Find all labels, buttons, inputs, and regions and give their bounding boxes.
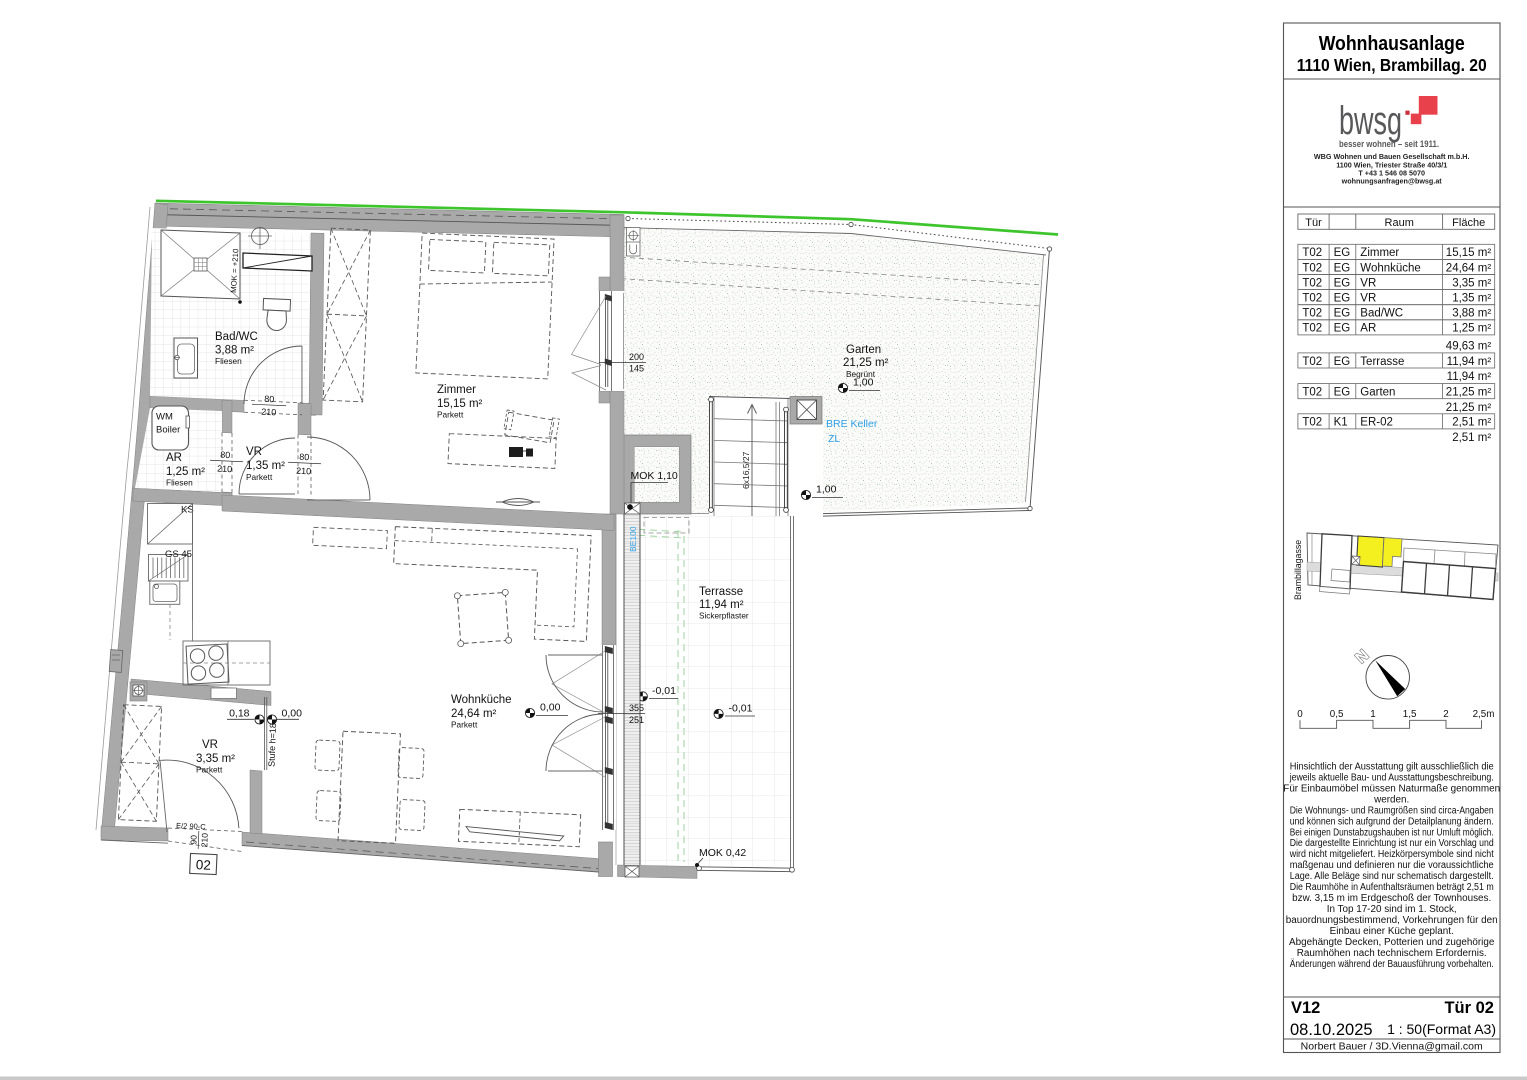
svg-text:Wohnküche: Wohnküche xyxy=(1360,262,1421,274)
svg-text:jeweils aktuelle Bau- und Auss: jeweils aktuelle Bau- und Ausstattungsbe… xyxy=(1289,773,1494,784)
svg-text:VR: VR xyxy=(1360,293,1376,305)
svg-text:21,25 m²: 21,25 m² xyxy=(1446,402,1492,414)
svg-text:Terrasse: Terrasse xyxy=(699,586,743,598)
svg-text:3,88 m²: 3,88 m² xyxy=(215,345,254,357)
svg-text:K1: K1 xyxy=(1334,417,1348,429)
svg-text:EG: EG xyxy=(1334,308,1351,320)
svg-text:3,35 m²: 3,35 m² xyxy=(1452,277,1491,289)
svg-text:wird nicht mitgeliefert. Heizk: wird nicht mitgeliefert. Heizkörpersymbo… xyxy=(1289,849,1494,860)
svg-text:15,15 m²: 15,15 m² xyxy=(1446,247,1492,259)
svg-text:11,94 m²: 11,94 m² xyxy=(1447,356,1492,368)
svg-text:T02: T02 xyxy=(1302,262,1322,274)
svg-text:E/2 90-C: E/2 90-C xyxy=(176,821,207,831)
svg-text:1,35 m²: 1,35 m² xyxy=(1452,293,1491,305)
svg-text:1,25 m²: 1,25 m² xyxy=(166,466,205,478)
svg-text:Garten: Garten xyxy=(1360,387,1395,399)
svg-text:Stufe h=18: Stufe h=18 xyxy=(267,723,279,767)
svg-text:MOK 1,10: MOK 1,10 xyxy=(631,470,678,482)
svg-text:Zimmer: Zimmer xyxy=(1360,247,1399,259)
svg-text:EG: EG xyxy=(1334,356,1351,368)
svg-text:11,94 m²: 11,94 m² xyxy=(1447,371,1492,383)
svg-text:21,25 m²: 21,25 m² xyxy=(1446,387,1492,399)
svg-text:Boiler: Boiler xyxy=(156,425,180,436)
svg-text:ER-02: ER-02 xyxy=(1360,417,1393,429)
svg-text:2: 2 xyxy=(1443,709,1448,720)
svg-text:-0,01: -0,01 xyxy=(652,685,676,697)
svg-text:BE100: BE100 xyxy=(628,526,638,552)
svg-text:0,00: 0,00 xyxy=(282,708,303,720)
svg-text:VR: VR xyxy=(246,446,262,458)
svg-text:200: 200 xyxy=(629,352,644,362)
svg-text:Wohnküche: Wohnküche xyxy=(451,694,512,706)
svg-text:EG: EG xyxy=(1334,262,1351,274)
svg-text:Bad/WC: Bad/WC xyxy=(215,331,258,343)
svg-text:T02: T02 xyxy=(1302,293,1322,305)
svg-text:VR: VR xyxy=(202,739,218,751)
svg-text:355: 355 xyxy=(629,703,644,713)
svg-text:Fliesen: Fliesen xyxy=(166,478,193,488)
svg-text:1,35 m²: 1,35 m² xyxy=(246,460,285,472)
svg-text:90: 90 xyxy=(188,835,198,845)
svg-text:24,64 m²: 24,64 m² xyxy=(1446,262,1492,274)
svg-text:Einbau einer Küche geplant.: Einbau einer Küche geplant. xyxy=(1330,926,1454,937)
svg-text:80: 80 xyxy=(264,394,274,404)
svg-text:Tür: Tür xyxy=(1305,217,1322,229)
svg-text:Parkett: Parkett xyxy=(246,472,273,482)
svg-text:Raum: Raum xyxy=(1385,217,1414,229)
svg-text:Bei einigen Dunstabzugshauben: Bei einigen Dunstabzugshauben ist nur Um… xyxy=(1290,827,1494,838)
svg-text:EG: EG xyxy=(1334,277,1351,289)
svg-text:Terrasse: Terrasse xyxy=(1360,356,1404,368)
svg-text:AR: AR xyxy=(1360,323,1376,335)
svg-text:2,51 m²: 2,51 m² xyxy=(1452,417,1491,429)
svg-text:02: 02 xyxy=(195,857,211,873)
svg-text:In Top 17-20 sind im 1. Stock,: In Top 17-20 sind im 1. Stock, xyxy=(1327,904,1457,915)
svg-text:Brambillagasse: Brambillagasse xyxy=(1293,540,1303,600)
svg-text:KS: KS xyxy=(181,505,194,516)
svg-text:Hinsichtlich der Ausstattung g: Hinsichtlich der Ausstattung gilt aussch… xyxy=(1290,762,1494,773)
svg-text:Raumhöhen nach technischem Erf: Raumhöhen nach technischem Erfordernis. xyxy=(1297,948,1487,959)
svg-text:bwsg: bwsg xyxy=(1339,99,1402,143)
svg-text:bauordnungsbestimmend, Vorkehr: bauordnungsbestimmend, Vorkehrungen für … xyxy=(1286,915,1498,926)
svg-text:und können sich aufgrund der D: und können sich aufgrund der Detailplanu… xyxy=(1290,816,1494,827)
svg-text:Sickerpflaster: Sickerpflaster xyxy=(699,612,749,621)
svg-text:Die Wohnungs- und Raumgrößen s: Die Wohnungs- und Raumgrößen sind circa-… xyxy=(1290,805,1494,816)
svg-text:11,94 m²: 11,94 m² xyxy=(699,599,744,611)
svg-text:6x16,5/27: 6x16,5/27 xyxy=(741,451,751,489)
svg-text:EG: EG xyxy=(1334,293,1351,305)
svg-text:T02: T02 xyxy=(1302,417,1322,429)
svg-text:VR: VR xyxy=(1360,277,1376,289)
svg-text:Fliesen: Fliesen xyxy=(215,356,242,366)
svg-text:BRE Keller: BRE Keller xyxy=(826,418,878,430)
svg-text:1 : 50(Format A3): 1 : 50(Format A3) xyxy=(1387,1021,1496,1037)
svg-text:251: 251 xyxy=(629,715,644,725)
svg-text:3,88 m²: 3,88 m² xyxy=(1452,308,1491,320)
svg-text:-0,01: -0,01 xyxy=(729,703,753,715)
svg-text:1,25 m²: 1,25 m² xyxy=(1452,323,1491,335)
svg-text:ZL: ZL xyxy=(828,433,840,445)
svg-text:GS 45: GS 45 xyxy=(165,549,192,560)
svg-text:210: 210 xyxy=(296,466,311,477)
svg-text:0,18: 0,18 xyxy=(229,708,250,720)
svg-text:WM: WM xyxy=(156,412,173,423)
svg-text:Wohnhausanlage: Wohnhausanlage xyxy=(1319,33,1465,55)
svg-text:maßgenau und definieren nur di: maßgenau und definieren nur die voraussi… xyxy=(1290,860,1494,871)
svg-text:21,25 m²: 21,25 m² xyxy=(843,357,889,369)
svg-text:EG: EG xyxy=(1334,387,1351,399)
svg-text:besser wohnen – seit 1911.: besser wohnen – seit 1911. xyxy=(1339,139,1439,150)
svg-text:1,00: 1,00 xyxy=(853,377,874,389)
svg-text:EG: EG xyxy=(1334,247,1351,259)
svg-text:wohnungsanfragen@bwsg.at: wohnungsanfragen@bwsg.at xyxy=(1341,177,1443,186)
svg-text:1,00: 1,00 xyxy=(816,484,837,496)
svg-text:Norbert Bauer / 3D.Vienna@gmai: Norbert Bauer / 3D.Vienna@gmail.com xyxy=(1301,1041,1483,1053)
svg-text:210: 210 xyxy=(199,833,209,848)
svg-text:Änderungen während der Bauausf: Änderungen während der Bauausführung vor… xyxy=(1290,959,1494,970)
svg-text:Die dargestellte Einrichtung i: Die dargestellte Einrichtung ist nur ein… xyxy=(1290,838,1494,849)
svg-text:Parkett: Parkett xyxy=(451,720,478,730)
svg-text:80: 80 xyxy=(299,452,309,462)
svg-text:1110 Wien, Brambillag. 20: 1110 Wien, Brambillag. 20 xyxy=(1297,55,1487,75)
svg-text:Tür 02: Tür 02 xyxy=(1444,999,1494,1017)
svg-text:Parkett: Parkett xyxy=(437,410,464,420)
svg-text:Zimmer: Zimmer xyxy=(437,384,476,396)
svg-text:15,15 m²: 15,15 m² xyxy=(437,398,483,410)
svg-text:1,5: 1,5 xyxy=(1403,709,1417,720)
svg-text:T02: T02 xyxy=(1302,323,1322,335)
svg-text:T02: T02 xyxy=(1302,356,1322,368)
svg-text:T02: T02 xyxy=(1302,277,1322,289)
svg-text:MOK 0,42: MOK 0,42 xyxy=(699,847,746,859)
svg-text:Bad/WC: Bad/WC xyxy=(1360,308,1403,320)
svg-text:AR: AR xyxy=(166,452,182,464)
svg-text:210: 210 xyxy=(261,407,276,418)
svg-text:1: 1 xyxy=(1370,709,1375,720)
svg-text:werden.: werden. xyxy=(1373,794,1409,805)
svg-text:49,63 m²: 49,63 m² xyxy=(1446,341,1492,353)
svg-text:T02: T02 xyxy=(1302,308,1322,320)
svg-text:Parkett: Parkett xyxy=(196,765,223,775)
svg-text:Für Einbaumöbel müssen Naturma: Für Einbaumöbel müssen Naturmaße genomme… xyxy=(1283,783,1500,794)
svg-text:08.10.2025: 08.10.2025 xyxy=(1290,1021,1373,1039)
svg-text:Abgehängte Decken, Potterien u: Abgehängte Decken, Potterien und zugehör… xyxy=(1289,937,1495,948)
svg-text:T02: T02 xyxy=(1302,387,1322,399)
svg-text:2,51 m²: 2,51 m² xyxy=(1452,432,1491,444)
svg-text:Fläche: Fläche xyxy=(1452,217,1485,229)
svg-text:Lage. Alle Beläge sind nur sch: Lage. Alle Beläge sind nur schematisch d… xyxy=(1290,871,1494,882)
svg-text:0: 0 xyxy=(1297,709,1303,720)
svg-text:210: 210 xyxy=(217,464,232,475)
svg-text:145: 145 xyxy=(629,364,644,374)
svg-text:Die Raumhöhe in Aufenthaltsräu: Die Raumhöhe in Aufenthaltsräumen beträg… xyxy=(1290,882,1494,893)
svg-text:EG: EG xyxy=(1334,323,1351,335)
svg-text:bzw. 3,15 m im Erdgeschoß der: bzw. 3,15 m im Erdgeschoß der Townhouses… xyxy=(1292,893,1491,904)
svg-text:24,64 m²: 24,64 m² xyxy=(451,708,497,720)
svg-text:V12: V12 xyxy=(1291,999,1320,1017)
svg-text:T02: T02 xyxy=(1302,247,1322,259)
svg-text:0,5: 0,5 xyxy=(1330,709,1344,720)
svg-text:80: 80 xyxy=(220,450,230,460)
svg-text:3,35 m²: 3,35 m² xyxy=(196,753,235,765)
svg-text:0,00: 0,00 xyxy=(540,702,561,714)
svg-text:2,5m: 2,5m xyxy=(1473,709,1495,720)
svg-text:Garten: Garten xyxy=(846,344,881,356)
